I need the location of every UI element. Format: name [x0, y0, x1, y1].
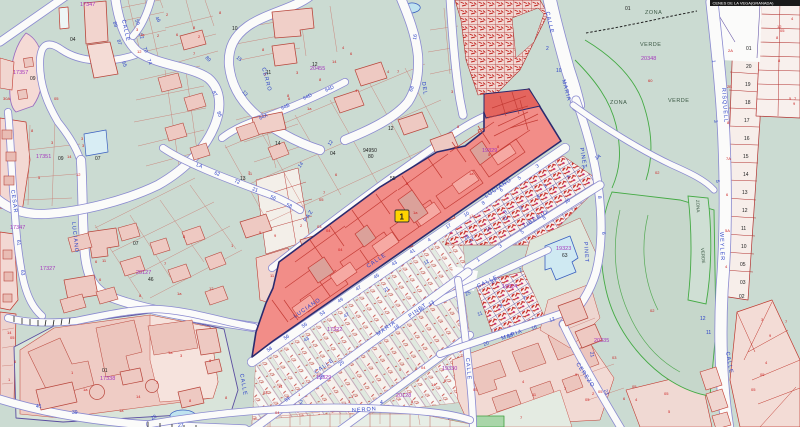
svg-text:03: 03 [317, 224, 322, 229]
svg-text:17327: 17327 [40, 266, 55, 272]
svg-text:11: 11 [706, 330, 711, 336]
svg-text:WEYLER: WEYLER [718, 232, 725, 261]
svg-text:04: 04 [338, 247, 343, 252]
svg-text:16: 16 [744, 136, 750, 142]
svg-text:12: 12 [209, 286, 214, 291]
svg-text:01: 01 [746, 46, 752, 52]
svg-text:CENES DE LA VEGA(GRANADA): CENES DE LA VEGA(GRANADA) [713, 1, 775, 6]
svg-text:1a: 1a [83, 387, 88, 392]
svg-text:20128: 20128 [396, 393, 411, 399]
svg-text:03: 03 [612, 355, 617, 360]
svg-text:10: 10 [741, 244, 747, 250]
svg-text:14: 14 [67, 154, 72, 159]
svg-text:14: 14 [278, 384, 283, 389]
svg-text:02: 02 [650, 308, 655, 313]
svg-text:20: 20 [746, 64, 752, 70]
svg-text:03: 03 [740, 280, 746, 286]
svg-text:14: 14 [136, 394, 141, 399]
svg-text:05: 05 [473, 387, 478, 392]
svg-text:12: 12 [777, 24, 782, 29]
svg-text:18: 18 [745, 100, 751, 106]
svg-text:05: 05 [760, 372, 765, 377]
svg-text:04: 04 [275, 410, 280, 415]
svg-text:41: 41 [36, 404, 42, 410]
svg-text:02: 02 [655, 170, 660, 175]
svg-text:1a: 1a [177, 291, 182, 296]
svg-text:09: 09 [58, 156, 64, 162]
svg-text:5A: 5A [725, 228, 730, 233]
svg-text:1: 1 [400, 213, 405, 222]
svg-text:1a: 1a [471, 213, 476, 218]
svg-text:39: 39 [72, 410, 78, 416]
svg-text:07: 07 [133, 241, 139, 247]
svg-text:1a: 1a [119, 408, 124, 413]
svg-text:05: 05 [598, 389, 603, 394]
svg-text:15: 15 [743, 154, 749, 160]
svg-text:02: 02 [739, 294, 745, 300]
svg-text:17347: 17347 [80, 2, 95, 8]
svg-text:14: 14 [332, 59, 337, 64]
svg-text:20348: 20348 [641, 56, 656, 62]
svg-text:60: 60 [648, 78, 653, 83]
svg-text:19323: 19323 [556, 246, 571, 252]
svg-text:05: 05 [751, 387, 756, 392]
svg-text:63: 63 [562, 253, 568, 259]
svg-text:04: 04 [70, 37, 76, 43]
svg-text:19330: 19330 [442, 366, 457, 372]
svg-text:12: 12 [700, 316, 706, 322]
svg-text:20335: 20335 [594, 338, 609, 344]
svg-text:05: 05 [10, 335, 15, 340]
svg-text:05: 05 [740, 262, 746, 268]
svg-text:ZONA: ZONA [695, 200, 701, 213]
svg-text:2: 2 [300, 400, 303, 406]
svg-text:1a: 1a [140, 32, 145, 37]
svg-text:05: 05 [585, 397, 590, 402]
svg-text:12: 12 [742, 208, 748, 214]
svg-text:55: 55 [390, 176, 396, 182]
svg-text:12: 12 [388, 126, 394, 132]
svg-text:07: 07 [95, 156, 101, 162]
svg-text:13: 13 [742, 190, 748, 196]
svg-text:80: 80 [368, 154, 374, 160]
svg-text:04: 04 [421, 365, 426, 370]
svg-text:VERDE: VERDE [640, 42, 661, 48]
svg-text:1a: 1a [168, 350, 173, 355]
svg-text:14: 14 [743, 172, 749, 178]
svg-text:05: 05 [664, 391, 669, 396]
svg-text:17351: 17351 [36, 154, 51, 160]
svg-text:17357: 17357 [13, 70, 28, 76]
svg-text:11: 11 [266, 70, 271, 76]
svg-text:63: 63 [19, 270, 25, 276]
svg-text:1a: 1a [413, 210, 418, 215]
svg-text:61: 61 [15, 240, 21, 246]
svg-text:7A: 7A [726, 156, 731, 161]
svg-text:2A: 2A [728, 48, 733, 53]
svg-text:2: 2 [546, 46, 549, 52]
svg-text:VERDE: VERDE [668, 98, 689, 104]
svg-text:4: 4 [380, 400, 383, 406]
svg-text:05: 05 [319, 197, 324, 202]
svg-text:ZONA: ZONA [645, 10, 662, 16]
svg-text:05: 05 [54, 96, 59, 101]
svg-text:04: 04 [326, 228, 331, 233]
svg-text:03: 03 [263, 390, 268, 395]
svg-text:14: 14 [275, 141, 281, 147]
svg-text:17347: 17347 [10, 225, 25, 231]
svg-text:01: 01 [625, 6, 631, 12]
svg-text:1a: 1a [307, 106, 312, 111]
svg-text:2B: 2B [727, 84, 732, 89]
svg-text:12: 12 [312, 62, 318, 68]
svg-text:01: 01 [102, 368, 108, 374]
svg-text:19324: 19324 [502, 284, 517, 290]
svg-text:04: 04 [330, 151, 336, 157]
svg-text:09: 09 [30, 76, 36, 82]
svg-text:ZONA: ZONA [610, 100, 627, 106]
svg-text:46: 46 [148, 277, 154, 283]
svg-text:27: 27 [178, 423, 184, 427]
svg-text:13: 13 [240, 176, 246, 182]
svg-text:30A: 30A [3, 96, 10, 101]
svg-text:12: 12 [76, 172, 81, 177]
svg-text:12: 12 [137, 49, 142, 54]
svg-text:17338: 17338 [100, 376, 115, 382]
svg-text:14: 14 [431, 382, 436, 387]
svg-text:05: 05 [632, 384, 637, 389]
svg-text:1a: 1a [469, 171, 474, 176]
svg-text:11: 11 [741, 226, 746, 232]
svg-text:10: 10 [556, 68, 562, 74]
svg-text:19: 19 [745, 82, 751, 88]
svg-text:20127: 20127 [136, 270, 151, 276]
svg-text:17322: 17322 [327, 327, 342, 333]
svg-text:10: 10 [232, 26, 238, 32]
svg-text:17: 17 [744, 118, 750, 124]
